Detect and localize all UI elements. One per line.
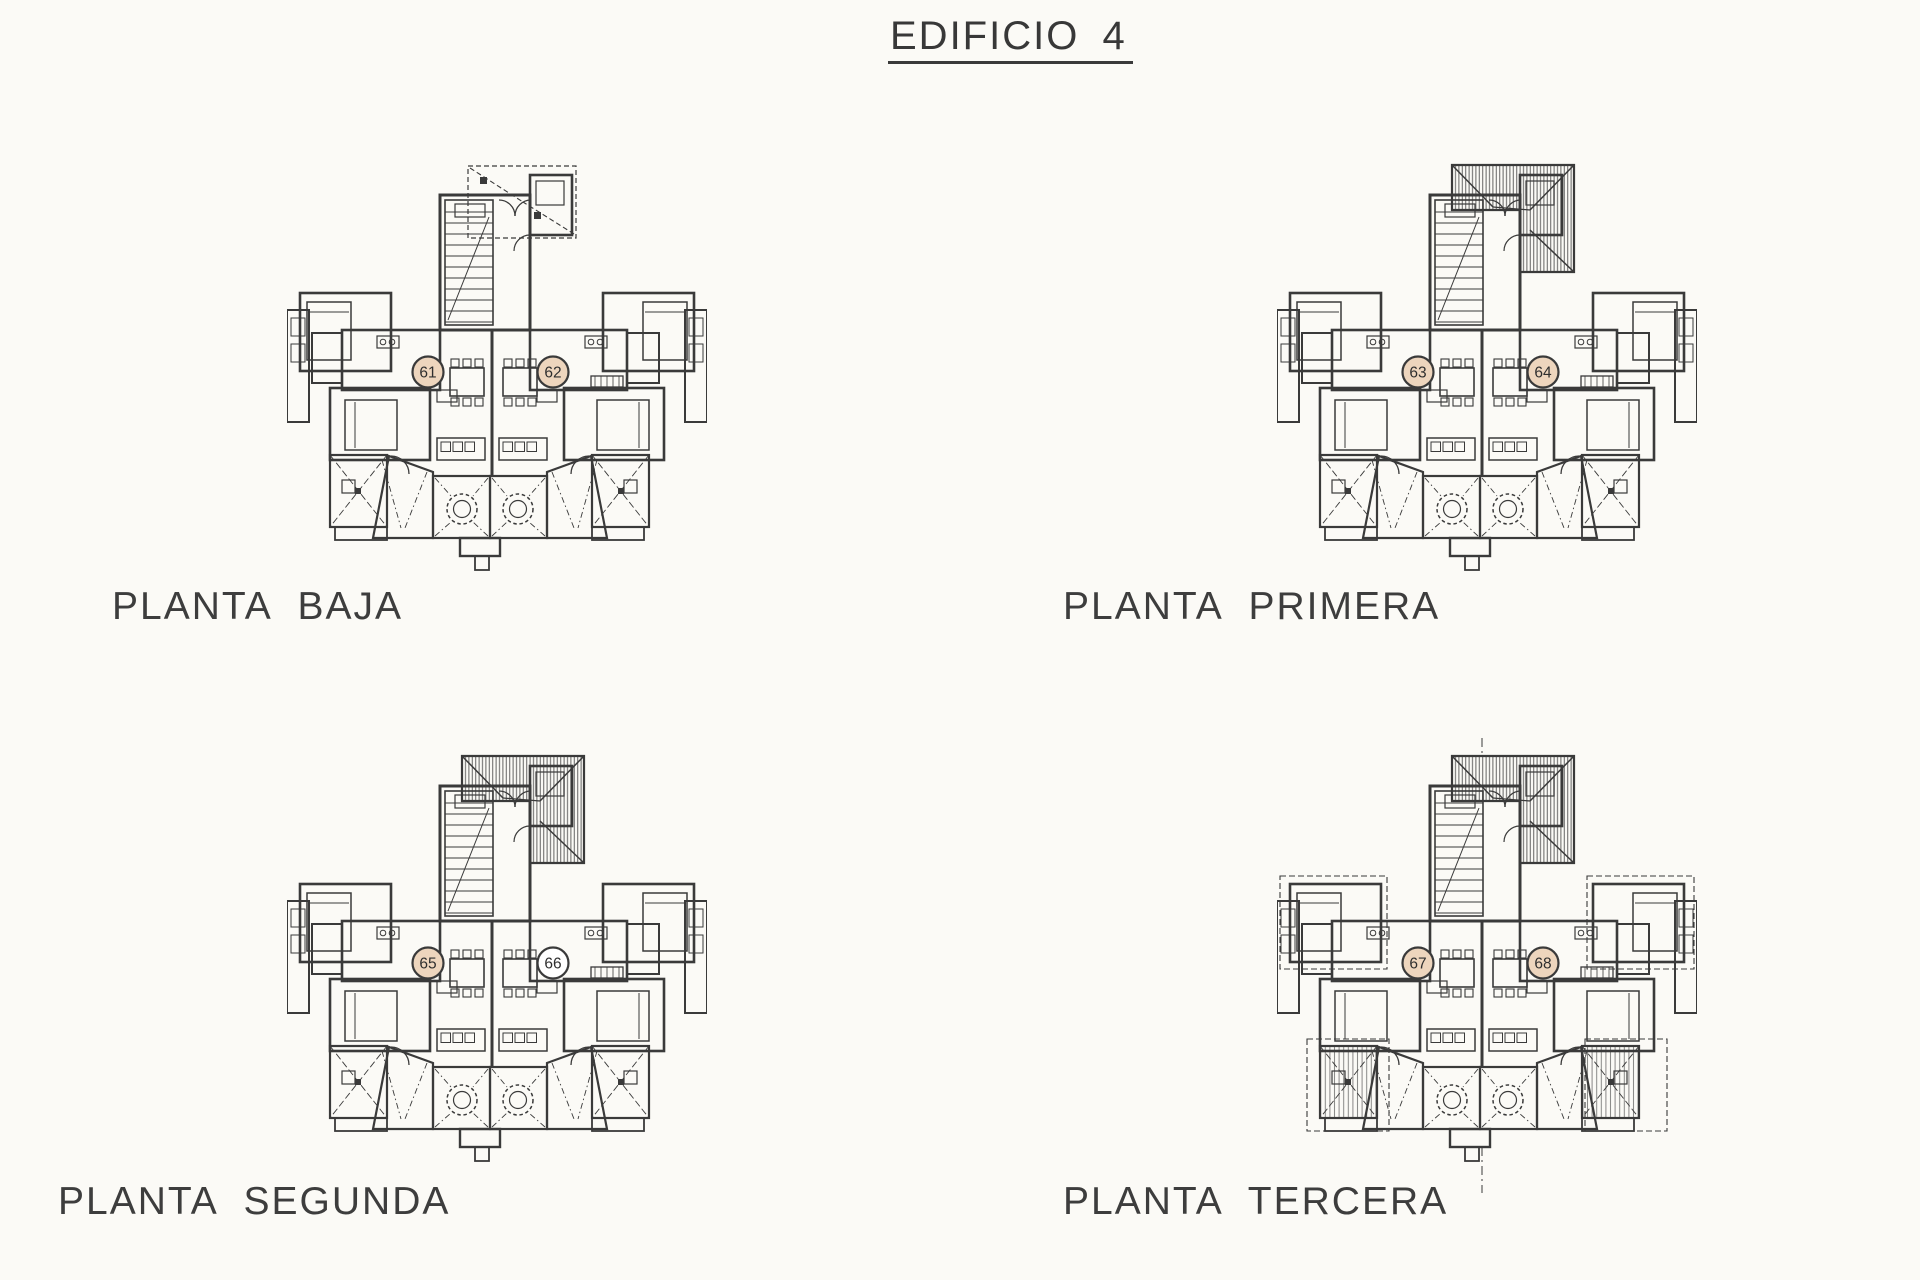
unit-number: 61 <box>419 365 436 382</box>
page-title-text: EDIFICIO 4 <box>890 14 1127 58</box>
plan-block-planta-segunda: 6566 <box>287 736 707 1196</box>
plan-label-planta-primera: PLANTA PRIMERA <box>1063 585 1440 629</box>
unit-number: 66 <box>544 956 561 973</box>
page-title: EDIFICIO 4 <box>888 14 1133 64</box>
floor-plan-planta-primera: 6364 <box>1277 145 1697 605</box>
plan-block-planta-tercera: 6768 <box>1277 736 1697 1196</box>
floor-plan-planta-tercera: 6768 <box>1277 736 1697 1196</box>
plan-block-planta-primera: 6364 <box>1277 145 1697 605</box>
plan-block-planta-baja: 6162 <box>287 145 707 605</box>
drawing-sheet: EDIFICIO 4 6162 6364 6566 6768 PLANTA BA… <box>0 0 1920 1280</box>
plan-label-planta-baja: PLANTA BAJA <box>112 585 403 629</box>
plan-drawing <box>287 166 707 570</box>
plan-drawing <box>287 756 707 1161</box>
plan-drawing <box>1277 165 1697 570</box>
unit-number: 65 <box>419 956 436 973</box>
plan-label-planta-segunda: PLANTA SEGUNDA <box>58 1180 450 1224</box>
plan-drawing <box>1277 738 1697 1193</box>
plan-label-planta-tercera: PLANTA TERCERA <box>1063 1180 1448 1224</box>
floor-plan-planta-segunda: 6566 <box>287 736 707 1196</box>
unit-number: 68 <box>1534 956 1551 973</box>
unit-number: 62 <box>544 365 561 382</box>
floor-plan-planta-baja: 6162 <box>287 145 707 605</box>
unit-number: 67 <box>1409 956 1426 973</box>
unit-number: 64 <box>1534 365 1552 382</box>
unit-number: 63 <box>1409 365 1426 382</box>
